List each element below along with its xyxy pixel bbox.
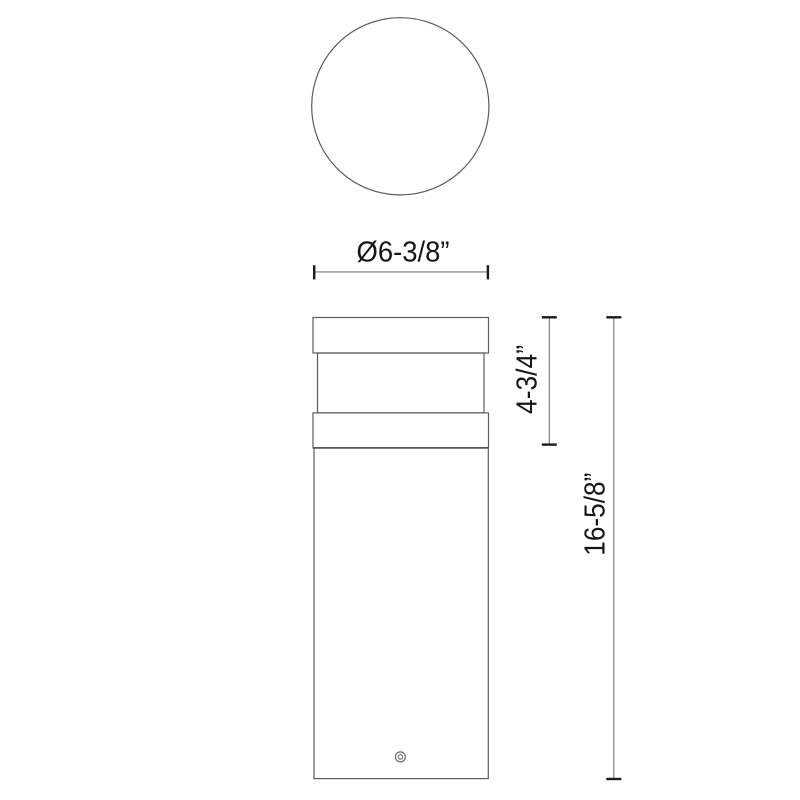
svg-text:4-3/4”: 4-3/4” (512, 345, 544, 414)
svg-text:Ø6-3/8”: Ø6-3/8” (357, 237, 450, 269)
svg-text:16-5/8”: 16-5/8” (580, 473, 612, 556)
